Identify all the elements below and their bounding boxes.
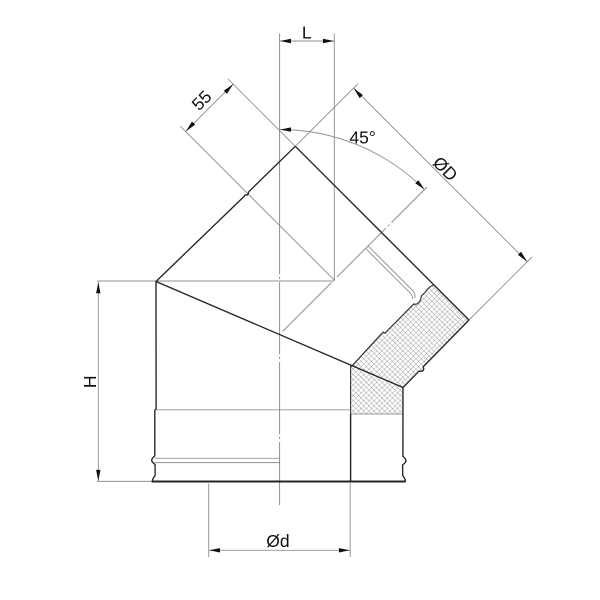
svg-text:ØD: ØD (429, 152, 462, 185)
svg-text:Ød: Ød (266, 531, 289, 551)
svg-text:45°: 45° (349, 127, 375, 147)
svg-text:L: L (302, 22, 312, 42)
svg-text:55: 55 (188, 86, 216, 114)
svg-text:H: H (80, 375, 100, 388)
